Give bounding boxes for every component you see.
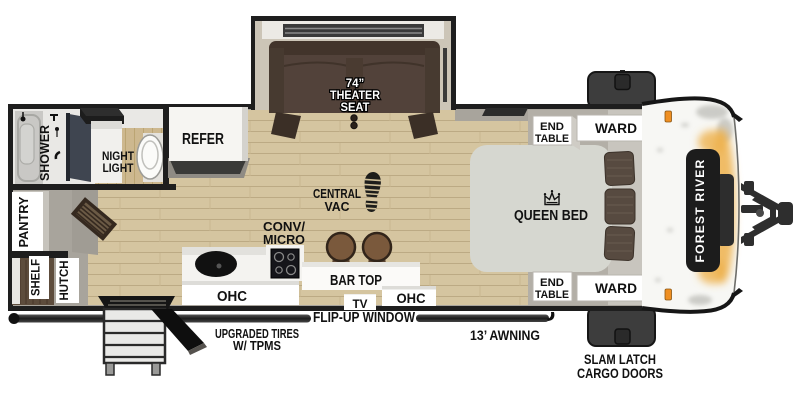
svg-text:74”: 74” <box>346 78 365 90</box>
svg-text:PANTRY: PANTRY <box>17 196 31 248</box>
svg-text:CARGO DOORS: CARGO DOORS <box>577 365 663 381</box>
svg-text:W/ TPMS: W/ TPMS <box>233 338 281 353</box>
svg-text:END: END <box>540 277 564 289</box>
svg-text:SEAT: SEAT <box>341 102 370 114</box>
svg-text:END: END <box>540 121 564 133</box>
svg-text:13’ AWNING: 13’ AWNING <box>470 328 540 343</box>
svg-text:WARD: WARD <box>595 280 637 296</box>
svg-text:HUTCH: HUTCH <box>57 261 71 301</box>
svg-text:OHC: OHC <box>217 289 247 305</box>
svg-text:MICRO: MICRO <box>263 232 305 247</box>
svg-text:OHC: OHC <box>397 290 426 306</box>
svg-text:TABLE: TABLE <box>535 289 569 301</box>
svg-text:REFER: REFER <box>182 131 224 148</box>
svg-text:FOREST RIVER: FOREST RIVER <box>695 159 707 263</box>
svg-text:BAR TOP: BAR TOP <box>330 273 382 289</box>
svg-text:SHOWER: SHOWER <box>37 124 52 181</box>
svg-text:FLIP-UP WINDOW: FLIP-UP WINDOW <box>313 310 415 326</box>
svg-text:TV: TV <box>353 299 368 311</box>
svg-text:CENTRAL: CENTRAL <box>313 187 361 201</box>
svg-text:VAC: VAC <box>325 200 350 214</box>
svg-text:TABLE: TABLE <box>535 133 569 145</box>
svg-text:SHELF: SHELF <box>29 259 43 296</box>
svg-text:LIGHT: LIGHT <box>103 161 135 175</box>
svg-text:WARD: WARD <box>595 120 637 136</box>
svg-text:QUEEN BED: QUEEN BED <box>514 208 588 224</box>
svg-text:THEATER: THEATER <box>330 90 381 102</box>
